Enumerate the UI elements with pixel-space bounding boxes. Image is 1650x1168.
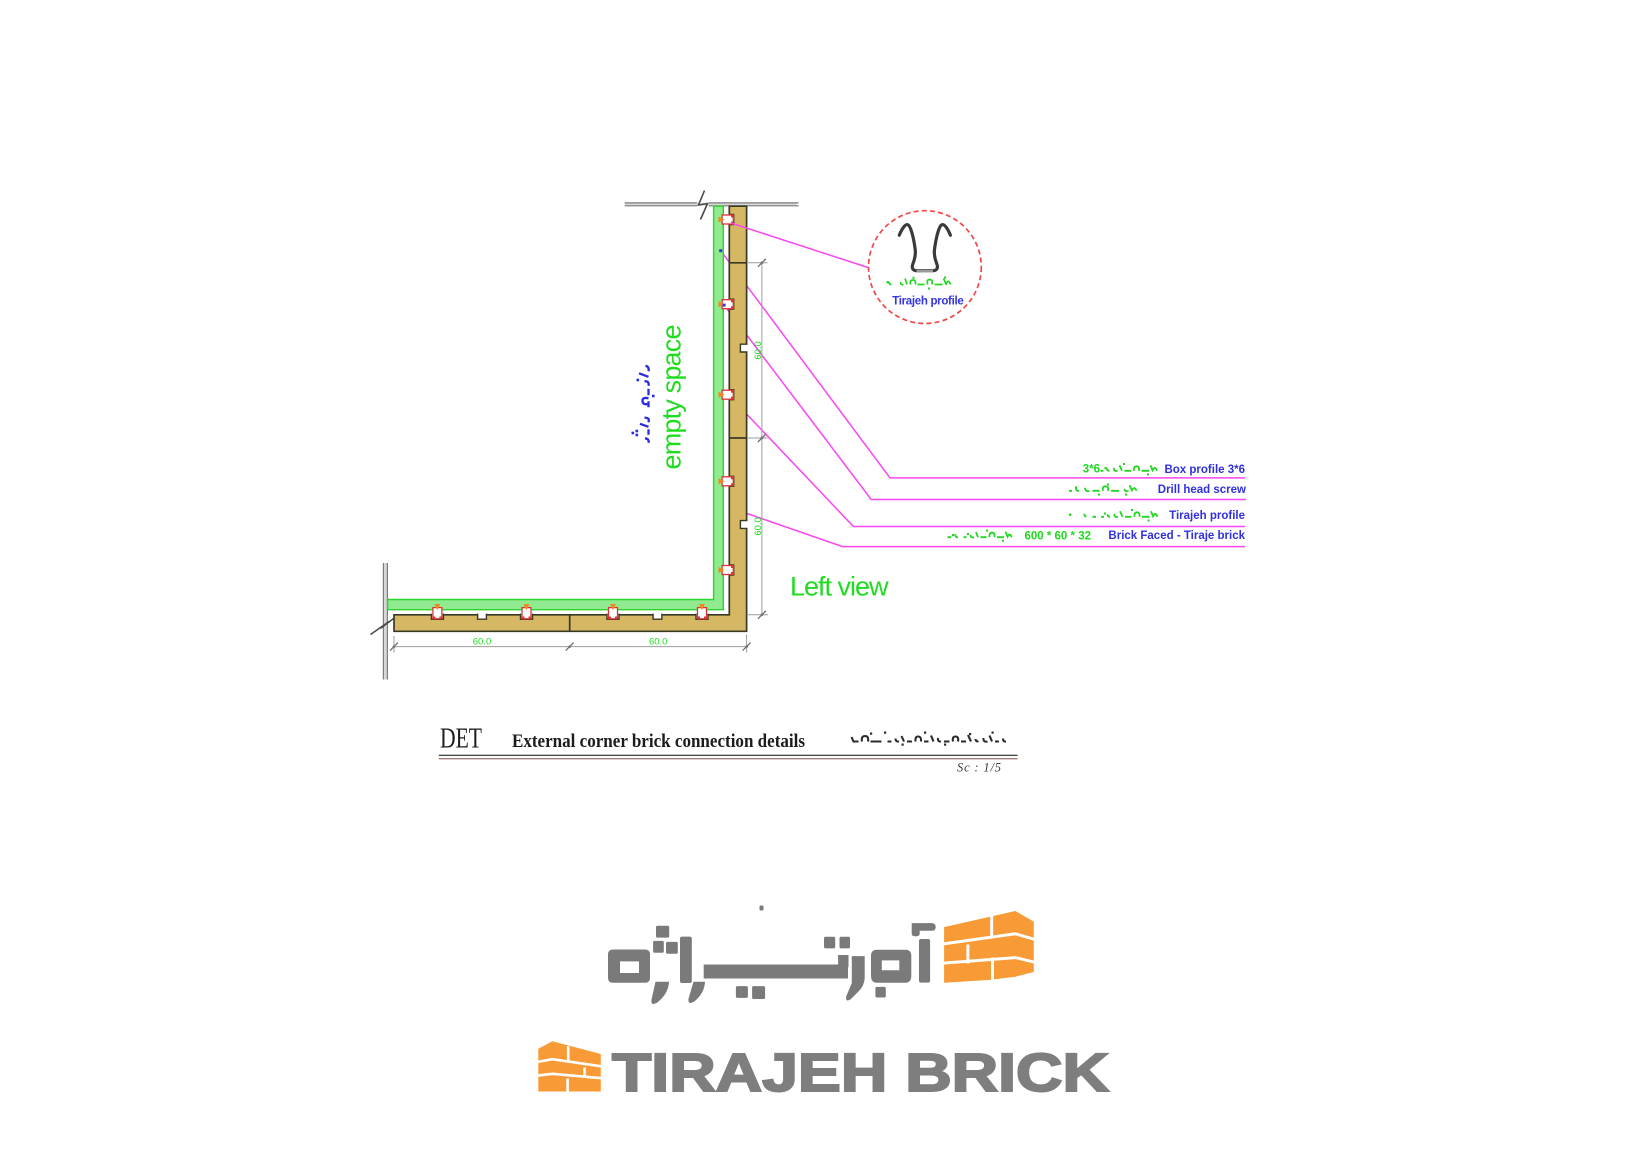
svg-text:60.0: 60.0 xyxy=(753,341,764,360)
svg-text:Brick Faced - Tiraje brick: Brick Faced - Tiraje brick xyxy=(1108,530,1245,542)
svg-text:External corner brick connecti: External corner brick connection details xyxy=(512,731,805,752)
svg-text:Sc : 1/5: Sc : 1/5 xyxy=(957,760,1001,774)
svg-text:60.0: 60.0 xyxy=(649,637,668,648)
svg-text:Tirajeh profile: Tirajeh profile xyxy=(1169,510,1245,522)
svg-text:60.0: 60.0 xyxy=(753,517,764,536)
svg-text:TIRAJEH BRICK: TIRAJEH BRICK xyxy=(612,1043,1109,1103)
svg-text:60.0: 60.0 xyxy=(473,637,492,648)
svg-text:Left view: Left view xyxy=(790,572,889,602)
svg-text:DET: DET xyxy=(440,724,482,755)
svg-text:Tirajeh profile: Tirajeh profile xyxy=(892,296,964,308)
svg-text:600 * 60 * 32: 600 * 60 * 32 xyxy=(1024,530,1091,542)
svg-text:Drill head screw: Drill head screw xyxy=(1158,484,1246,496)
svg-text:3*6: 3*6 xyxy=(1083,464,1100,476)
svg-text:empty space: empty space xyxy=(657,325,687,470)
svg-text:Box profile 3*6: Box profile 3*6 xyxy=(1164,464,1245,476)
